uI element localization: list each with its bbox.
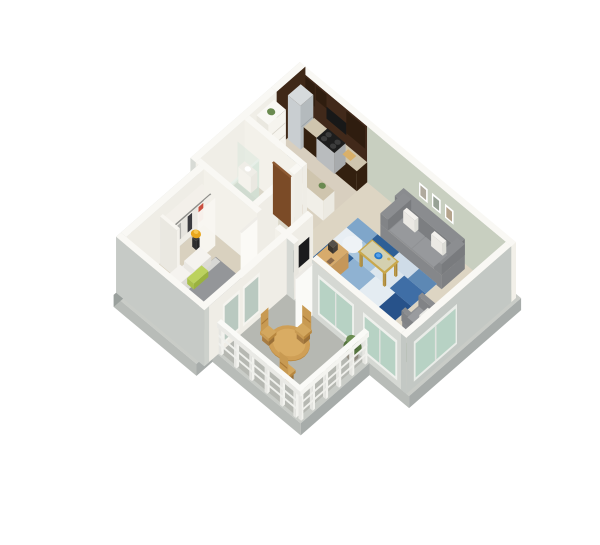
- railing-south-post-1-south-face: [219, 328, 222, 356]
- wall-bedroom-south-east-face: [204, 306, 209, 366]
- railing-east-post-1-east-face: [365, 337, 367, 365]
- railing-south-post-6-south-face: [293, 390, 296, 418]
- railing-south-post-3-south-face: [249, 353, 252, 381]
- south-window-1-mullion: [335, 292, 336, 327]
- floorplan-page: [0, 0, 600, 545]
- wall-east-south-face: [401, 333, 406, 394]
- railing-east-post-6-east-face: [301, 393, 303, 421]
- south-window-2-mullion: [379, 329, 380, 364]
- railing-east-post-5-east-face: [313, 383, 315, 411]
- railing-east-post-3-east-face: [339, 360, 341, 388]
- east-window-mullion: [435, 325, 437, 360]
- floorplan-3d-render: [0, 0, 600, 545]
- railing-south-post-4-south-face: [265, 366, 268, 394]
- railing-south-post-5-south-face: [280, 379, 283, 407]
- railing-east-post-6-south-face: [298, 392, 301, 420]
- wall-living-north-sage-east-face: [511, 242, 516, 302]
- railing-east-post-4-east-face: [326, 371, 328, 399]
- wall-living-south-left-south-face: [287, 238, 294, 300]
- railing-south-post-2-south-face: [234, 340, 237, 368]
- railing-east-post-2-east-face: [352, 348, 354, 376]
